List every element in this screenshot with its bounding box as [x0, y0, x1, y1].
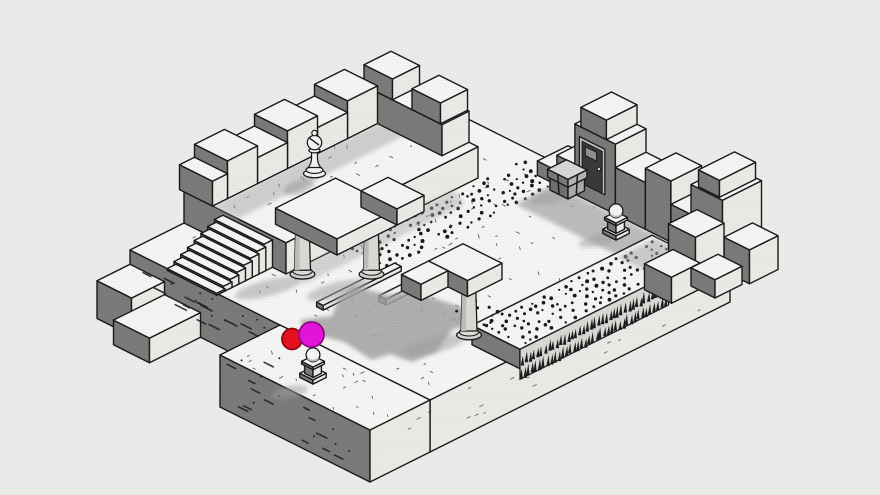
isometric-dungeon-scene[interactable] — [0, 0, 880, 495]
magenta-ellipse-marker[interactable] — [299, 322, 324, 347]
game-viewport[interactable] — [0, 0, 880, 495]
